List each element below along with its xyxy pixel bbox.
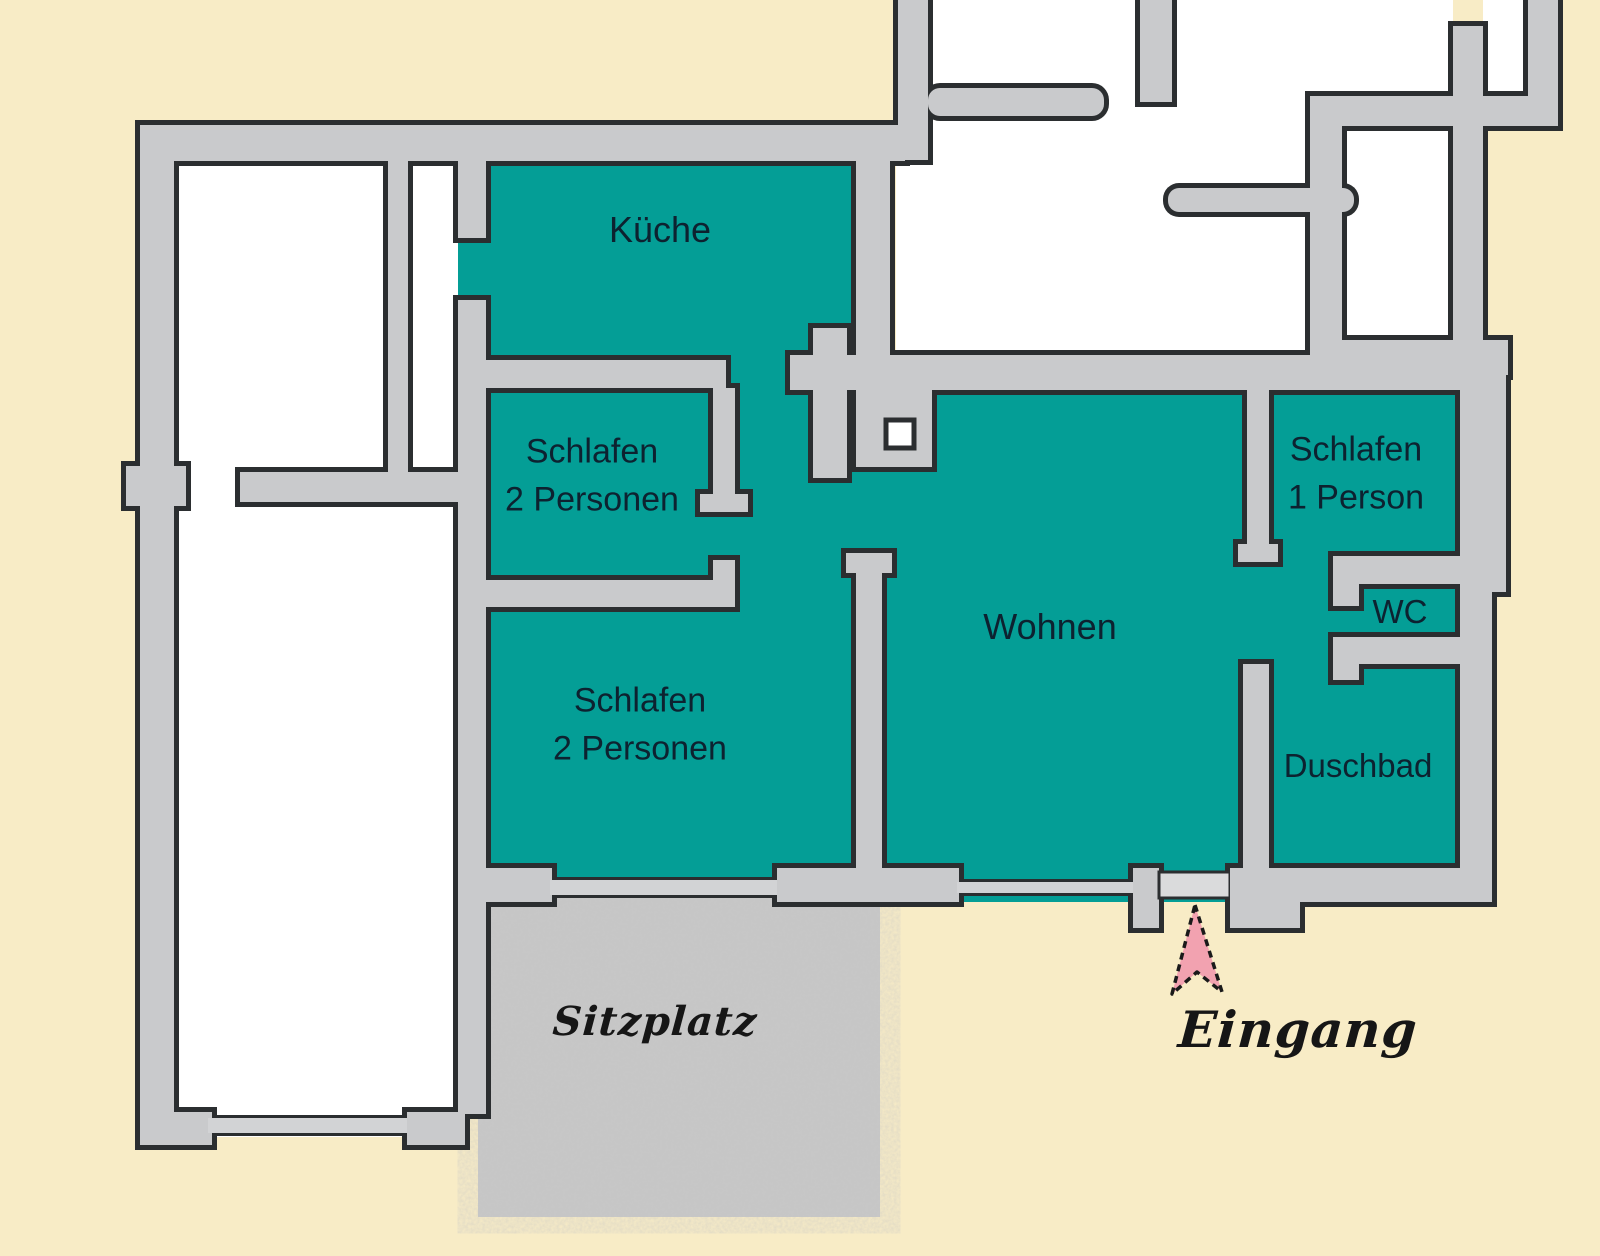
- room-label-line2: 2 Personen: [505, 476, 679, 524]
- room-label-line1: Schlafen: [505, 428, 679, 476]
- room-label-schlafen-2-oben: Schlafen 2 Personen: [505, 428, 679, 523]
- room-label-line2: 2 Personen: [553, 725, 727, 773]
- room-label-line2: 1 Person: [1288, 474, 1424, 522]
- room-label-schlafen-2-unten: Schlafen 2 Personen: [553, 677, 727, 772]
- sitzplatz-label: Sitzplatz: [551, 994, 759, 1050]
- room-label-wc: WC: [1373, 589, 1428, 635]
- room-label-kueche: Küche: [609, 205, 711, 255]
- floor-plan-drawing: [0, 0, 1600, 1256]
- room-label-line1: Schlafen: [553, 677, 727, 725]
- eingang-label: Eingang: [1176, 995, 1420, 1065]
- sitzplatz-patio: [478, 895, 880, 1217]
- room-label-line1: Schlafen: [1288, 426, 1424, 474]
- floor-plan: Küche Schlafen 2 Personen Schlafen 2 Per…: [0, 0, 1600, 1256]
- room-label-duschbad: Duschbad: [1284, 743, 1433, 789]
- room-label-schlafen-1: Schlafen 1 Person: [1288, 426, 1424, 521]
- room-label-wohnen: Wohnen: [983, 602, 1116, 652]
- top-right-notch-floor: [1483, 0, 1528, 98]
- left-white-room-floor: [150, 135, 462, 1137]
